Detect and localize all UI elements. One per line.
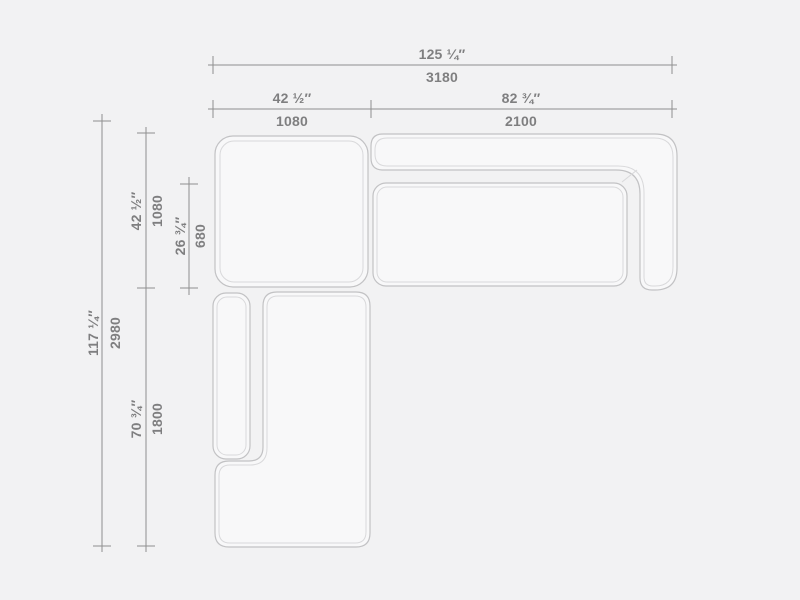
dim-module-depth-bottom-mm: 1800: [149, 403, 165, 435]
sectional-sofa-plan-drawing: 125 ¼″ 3180 42 ½″ 1080 82 ¾″ 2100 117 ¼″…: [0, 0, 800, 600]
dim-overall-depth-mm: 2980: [107, 317, 123, 349]
dim-module-depth-top-mm: 1080: [149, 195, 165, 227]
dim-overall-width-mm: 3180: [426, 69, 458, 85]
dim-module-width-right-inches: 82 ¾″: [502, 90, 541, 106]
dim-overall-width-inches: 125 ¼″: [419, 46, 466, 62]
dim-seat-depth-inches: 26 ¾″: [172, 216, 188, 255]
dim-module-depth-top-inches: 42 ½″: [128, 191, 144, 230]
dim-module-width-left-mm: 1080: [276, 113, 308, 129]
corner-module-outline: [215, 136, 368, 287]
sofa-seat-outline: [373, 183, 627, 286]
furniture-group: [213, 134, 677, 547]
dim-overall-depth-inches: 117 ¼″: [85, 310, 101, 356]
sofa-right-module-icon: [371, 134, 677, 290]
dim-seat-depth-mm: 680: [192, 224, 208, 248]
chaise-backrest-outline: [213, 293, 250, 459]
sofa-dimension-diagram: 125 ¼″ 3180 42 ½″ 1080 82 ¾″ 2100 117 ¼″…: [0, 0, 800, 600]
chaise-bottom-module-icon: [213, 292, 370, 547]
dim-module-width-right-mm: 2100: [505, 113, 537, 129]
corner-module-icon: [215, 136, 368, 287]
dimension-lines-group: [93, 56, 677, 552]
dim-module-depth-bottom-inches: 70 ¾″: [128, 399, 144, 438]
dim-module-width-left-inches: 42 ½″: [273, 90, 312, 106]
